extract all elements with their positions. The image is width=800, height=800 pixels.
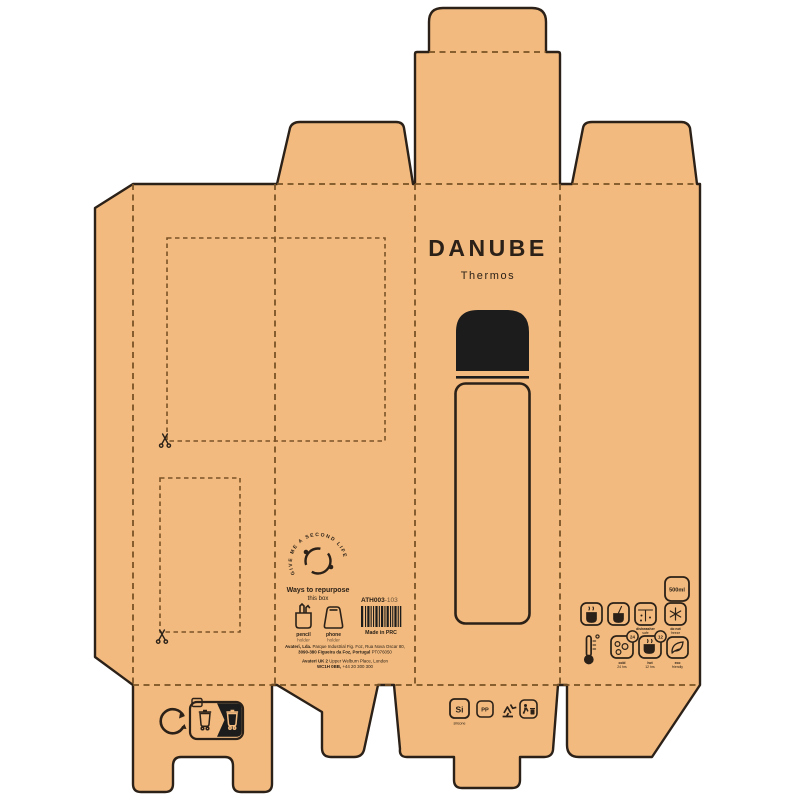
capacity-label: 500ml (669, 588, 685, 594)
svg-text:3090-380 Figueira da Foz, Port: 3090-380 Figueira da Foz, Portugal PT076… (298, 650, 392, 655)
address-line2-bold: 3090-380 Figueira da Foz, Portugal (298, 650, 370, 655)
sku-variant: -103 (385, 597, 398, 604)
do-not-freeze-sublabel: freeze (671, 631, 681, 635)
eco-leaf-sublabel: friendly (672, 665, 683, 669)
brand-title: DANUBE (428, 235, 547, 261)
repurpose-heading: Ways to repurpose (287, 587, 350, 594)
address-line2-rest: PT076050 (370, 650, 392, 655)
svg-text:Avateri, Lda. Parque Industria: Avateri, Lda. Parque Industrial Fig. Foz… (285, 644, 405, 649)
repurpose-subheading: this box (308, 596, 329, 602)
pp-mark-text: PP (481, 708, 489, 714)
svg-text:Avateri UK 2 Upper Welburn Pla: Avateri UK 2 Upper Welburn Place, London (302, 659, 388, 664)
silicone-mark-label: silicone (454, 722, 466, 726)
svg-text:ATH003-103: ATH003-103 (361, 597, 398, 604)
pencil-holder-sublabel: holder (297, 638, 310, 643)
cold-24h-sublabel: 24 hrs (617, 665, 627, 669)
silicone-mark-text: Si (455, 705, 463, 715)
sku-code: ATH003 (361, 597, 385, 604)
hot-12h-sublabel: 12 hrs (645, 665, 655, 669)
made-in-label: Made in PRC (365, 630, 397, 636)
address-line3-rest: Upper Welburn Place, London (328, 659, 389, 664)
address-line4-rest: +44 20 300 300 (341, 664, 373, 669)
address-line3-bold: Avateri UK 2 (302, 659, 329, 664)
phone-holder-sublabel: holder (327, 638, 340, 643)
address-line4-bold: WC1H 0BB, (317, 664, 341, 669)
thermos-cap-ring (456, 376, 529, 379)
address-line1-rest: Parque Industrial Fig. Foz, Rua Nova Osc… (311, 644, 405, 649)
badge-24h-text: 24 (630, 634, 635, 639)
address-line1-bold: Avateri, Lda. (285, 644, 311, 649)
thermos-cap (456, 310, 529, 371)
box-outline (95, 8, 700, 792)
dieline-canvas: DANUBE Thermos GIVE ME A SECOND LIFE Way… (0, 0, 800, 800)
brand-subtitle: Thermos (461, 270, 516, 282)
badge-12h-text: 12 (658, 634, 663, 639)
packaging-dieline-screenshot: DANUBE Thermos GIVE ME A SECOND LIFE Way… (0, 0, 800, 800)
svg-text:WC1H 0BB, +44 20 300 300: WC1H 0BB, +44 20 300 300 (317, 664, 374, 669)
dishwasher-safe-sublabel: safe (642, 631, 649, 635)
